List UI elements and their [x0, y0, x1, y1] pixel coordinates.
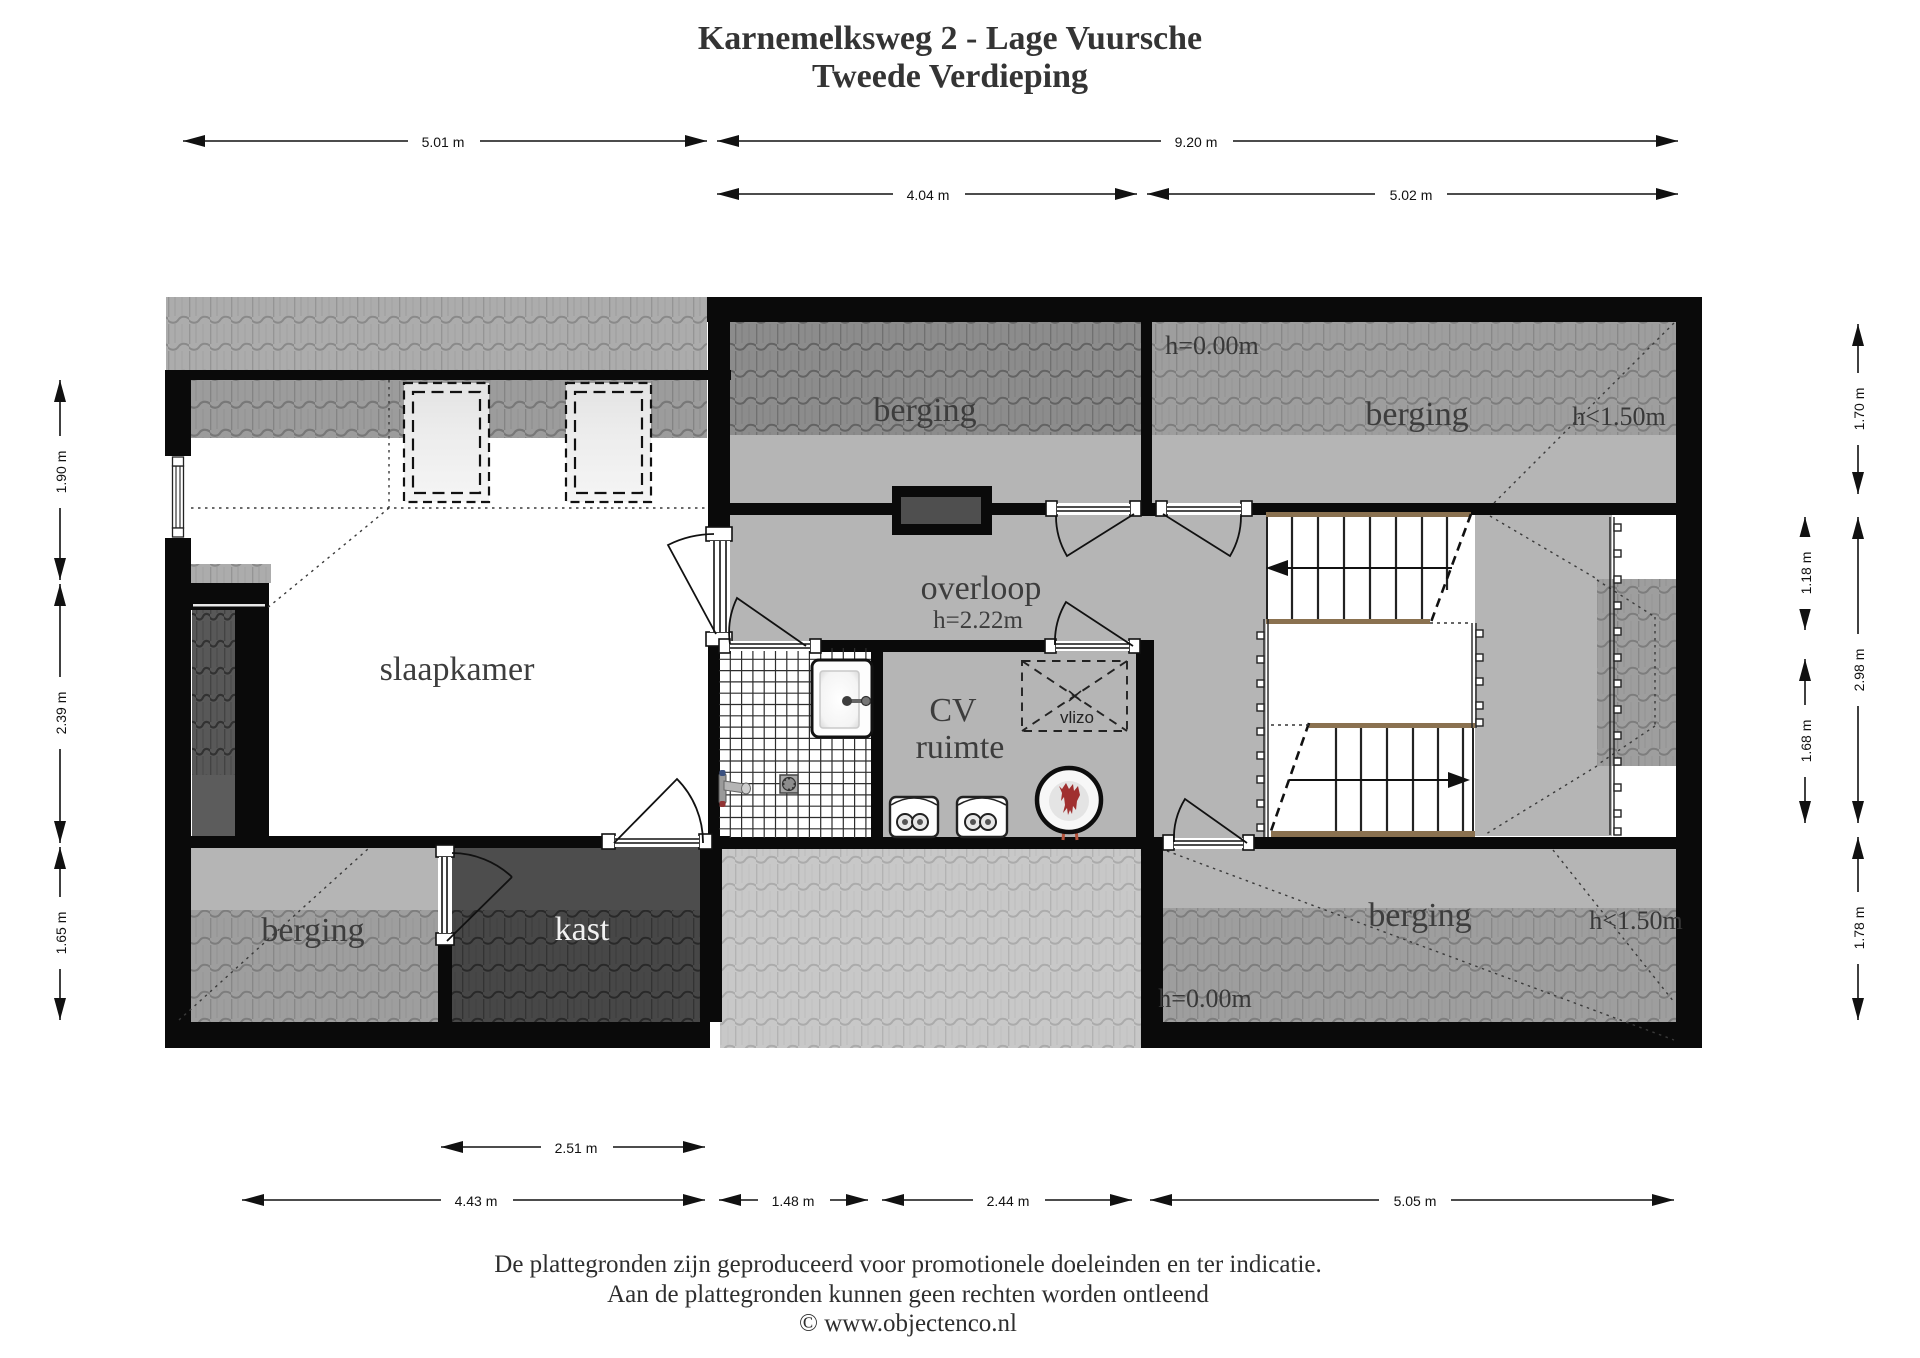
svg-text:5.05 m: 5.05 m — [1394, 1193, 1437, 1209]
svg-text:De plattegronden zijn geproduc: De plattegronden zijn geproduceerd voor … — [494, 1251, 1321, 1278]
svg-text:2.44 m: 2.44 m — [987, 1193, 1030, 1209]
svg-text:vlizo: vlizo — [1060, 708, 1094, 727]
svg-text:CV: CV — [929, 692, 977, 729]
svg-text:1.78 m: 1.78 m — [1851, 907, 1867, 950]
svg-text:5.02 m: 5.02 m — [1390, 187, 1433, 203]
svg-text:1.18 m: 1.18 m — [1798, 552, 1814, 595]
svg-text:© www.objectenco.nl: © www.objectenco.nl — [799, 1310, 1017, 1337]
svg-text:overloop: overloop — [921, 570, 1042, 607]
svg-text:berging: berging — [1368, 897, 1471, 934]
svg-text:4.43 m: 4.43 m — [455, 1193, 498, 1209]
svg-text:2.39 m: 2.39 m — [53, 692, 69, 735]
svg-text:h=0.00m: h=0.00m — [1158, 984, 1251, 1013]
svg-text:berging: berging — [1365, 396, 1468, 433]
svg-text:berging: berging — [873, 392, 976, 429]
svg-text:4.04 m: 4.04 m — [907, 187, 950, 203]
svg-text:9.20 m: 9.20 m — [1175, 134, 1218, 150]
svg-text:1.48 m: 1.48 m — [772, 1193, 815, 1209]
svg-text:Karnemelksweg 2 - Lage Vuursch: Karnemelksweg 2 - Lage Vuursche — [698, 20, 1202, 57]
svg-text:slaapkamer: slaapkamer — [380, 651, 535, 688]
svg-text:1.70 m: 1.70 m — [1851, 388, 1867, 431]
svg-text:h<1.50m: h<1.50m — [1589, 906, 1682, 935]
svg-text:1.68 m: 1.68 m — [1798, 720, 1814, 763]
svg-text:berging: berging — [261, 912, 364, 949]
svg-text:2.51 m: 2.51 m — [555, 1140, 598, 1156]
svg-text:Tweede Verdieping: Tweede Verdieping — [812, 58, 1088, 95]
svg-text:ruimte: ruimte — [916, 729, 1005, 766]
svg-text:h<1.50m: h<1.50m — [1572, 402, 1665, 431]
svg-text:h=2.22m: h=2.22m — [933, 607, 1023, 634]
svg-text:kast: kast — [555, 911, 610, 948]
svg-text:1.90 m: 1.90 m — [53, 451, 69, 494]
svg-text:h=0.00m: h=0.00m — [1165, 331, 1258, 360]
svg-text:1.65 m: 1.65 m — [53, 912, 69, 955]
svg-text:Aan de plattegronden kunnen ge: Aan de plattegronden kunnen geen rechten… — [607, 1281, 1209, 1308]
svg-text:2.98 m: 2.98 m — [1851, 649, 1867, 692]
svg-text:5.01 m: 5.01 m — [422, 134, 465, 150]
